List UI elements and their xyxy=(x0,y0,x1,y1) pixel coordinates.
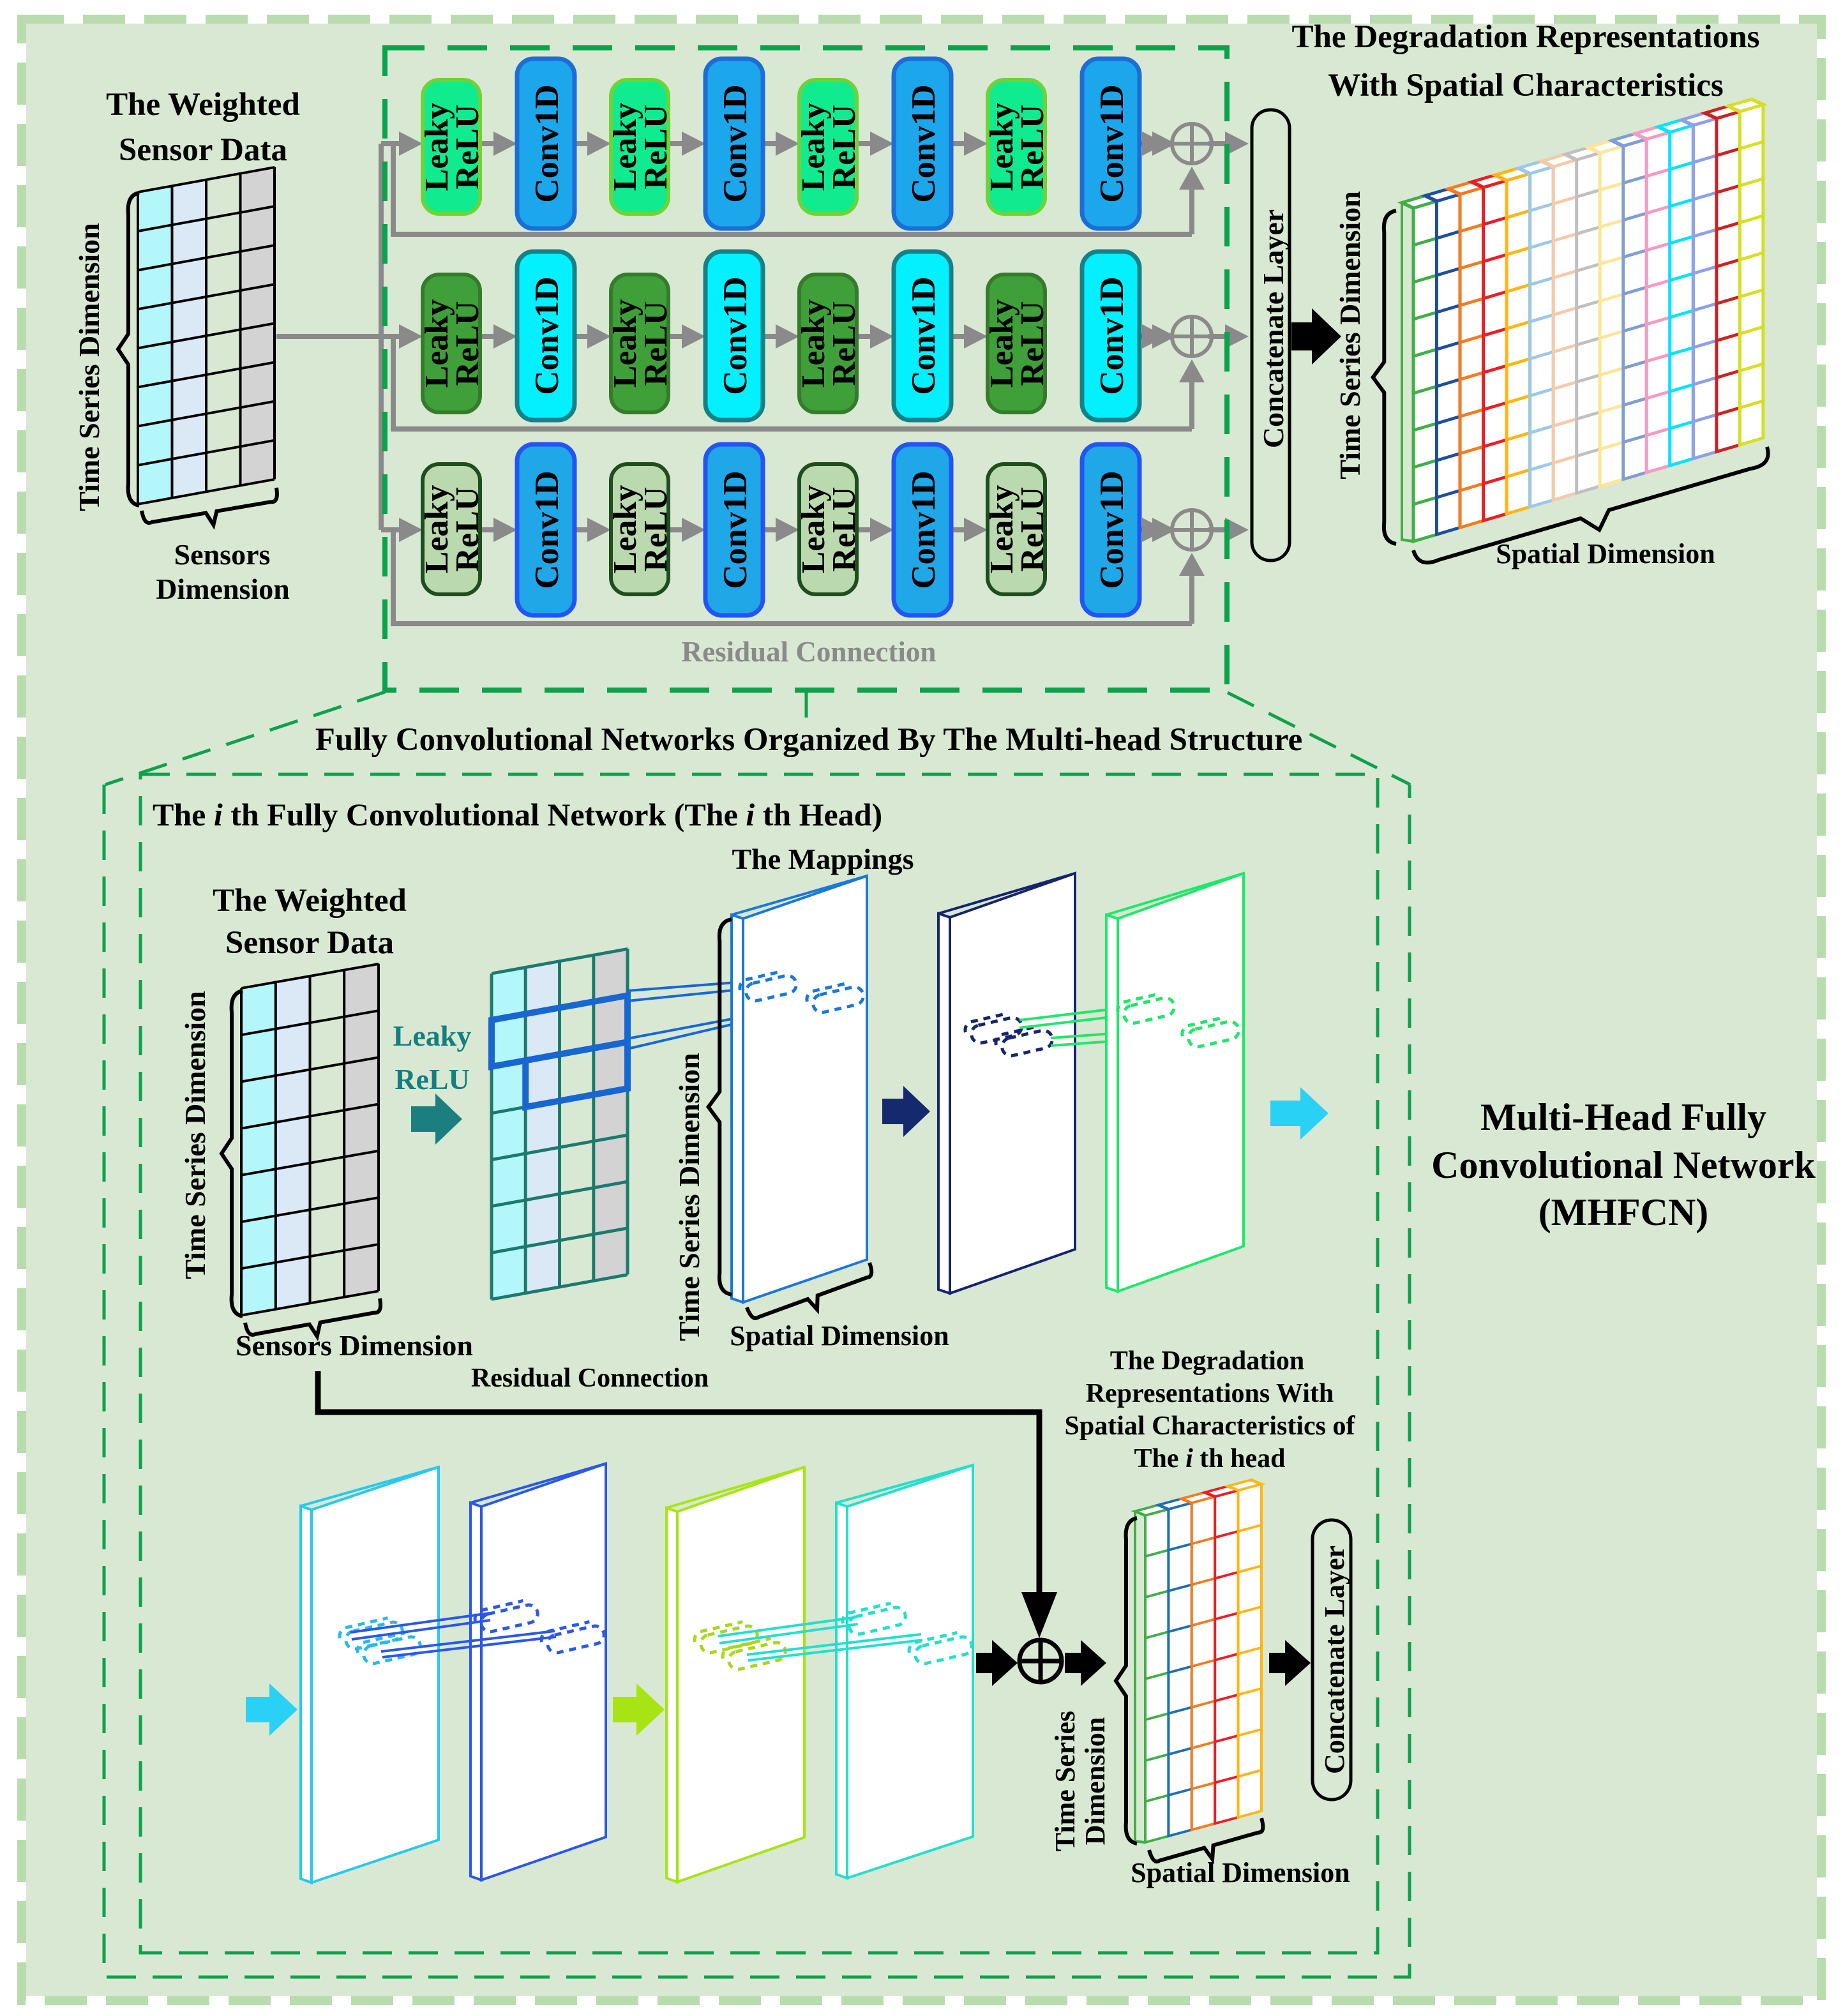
svg-text:ReLU: ReLU xyxy=(638,487,674,572)
svg-text:Conv1D: Conv1D xyxy=(717,84,754,203)
svg-text:Conv1D: Conv1D xyxy=(717,470,754,589)
svg-text:ReLU: ReLU xyxy=(1014,487,1051,572)
svg-text:Spatial Dimension: Spatial Dimension xyxy=(1496,538,1715,569)
svg-text:Conv1D: Conv1D xyxy=(529,276,566,395)
svg-text:Conv1D: Conv1D xyxy=(905,470,942,589)
svg-text:The Weighted: The Weighted xyxy=(213,883,407,919)
svg-text:ReLU: ReLU xyxy=(826,105,862,190)
svg-text:Sensors Dimension: Sensors Dimension xyxy=(236,1329,473,1362)
svg-text:(MHFCN): (MHFCN) xyxy=(1538,1191,1709,1233)
svg-text:ReLU: ReLU xyxy=(638,301,674,386)
svg-text:ReLU: ReLU xyxy=(449,487,486,572)
svg-text:Spatial Dimension: Spatial Dimension xyxy=(730,1320,949,1351)
svg-text:Residual Connection: Residual Connection xyxy=(682,636,937,668)
svg-text:Convolutional Network: Convolutional Network xyxy=(1431,1144,1816,1186)
svg-text:Conv1D: Conv1D xyxy=(1094,470,1131,589)
svg-text:ReLU: ReLU xyxy=(826,487,862,572)
svg-text:The Weighted: The Weighted xyxy=(106,87,300,123)
svg-text:Fully Convolutional Networks O: Fully Convolutional Networks Organized B… xyxy=(315,722,1303,758)
svg-text:Conv1D: Conv1D xyxy=(905,276,942,395)
svg-text:ReLU: ReLU xyxy=(1014,105,1051,190)
svg-text:Conv1D: Conv1D xyxy=(1094,84,1131,203)
svg-text:The Degradation Representation: The Degradation Representations xyxy=(1292,19,1760,55)
svg-text:Conv1D: Conv1D xyxy=(529,470,566,589)
svg-text:ReLU: ReLU xyxy=(395,1063,470,1095)
svg-text:Concatenate Layer: Concatenate Layer xyxy=(1319,1546,1350,1774)
svg-text:ReLU: ReLU xyxy=(449,301,486,386)
svg-text:Conv1D: Conv1D xyxy=(905,84,942,203)
svg-text:The Mappings: The Mappings xyxy=(732,843,914,875)
svg-text:The Degradation: The Degradation xyxy=(1110,1346,1305,1376)
svg-text:Conv1D: Conv1D xyxy=(529,84,566,203)
svg-text:ReLU: ReLU xyxy=(826,301,862,386)
svg-text:Conv1D: Conv1D xyxy=(1094,276,1131,395)
svg-text:The i th Fully Convolutional N: The i th Fully Convolutional Network (Th… xyxy=(153,797,882,832)
svg-text:Concatenate Layer: Concatenate Layer xyxy=(1257,209,1290,448)
svg-text:Dimension: Dimension xyxy=(1079,1717,1111,1845)
svg-text:Conv1D: Conv1D xyxy=(717,276,754,395)
svg-text:Time Series Dimension: Time Series Dimension xyxy=(73,223,105,511)
svg-text:Time Series: Time Series xyxy=(1049,1711,1081,1851)
svg-text:Representations With: Representations With xyxy=(1086,1379,1334,1408)
svg-text:Multi-Head Fully: Multi-Head Fully xyxy=(1480,1096,1766,1138)
svg-text:ReLU: ReLU xyxy=(449,105,486,190)
svg-text:Time Series Dimension: Time Series Dimension xyxy=(179,991,211,1279)
svg-text:Spatial Characteristics of: Spatial Characteristics of xyxy=(1065,1411,1356,1441)
svg-text:ReLU: ReLU xyxy=(1014,301,1051,386)
svg-text:Sensor Data: Sensor Data xyxy=(225,925,394,961)
svg-text:Time Series Dimension: Time Series Dimension xyxy=(673,1053,705,1341)
svg-text:Spatial Dimension: Spatial Dimension xyxy=(1131,1857,1350,1888)
svg-text:The i th head: The i th head xyxy=(1134,1444,1286,1473)
svg-text:ReLU: ReLU xyxy=(638,105,674,190)
svg-text:Sensors: Sensors xyxy=(174,538,271,571)
svg-text:Dimension: Dimension xyxy=(156,573,290,605)
svg-text:Time Series Dimension: Time Series Dimension xyxy=(1334,191,1366,479)
svg-text:With Spatial Characteristics: With Spatial Characteristics xyxy=(1328,68,1724,103)
svg-text:Leaky: Leaky xyxy=(393,1019,472,1052)
svg-text:Residual Connection: Residual Connection xyxy=(471,1364,709,1393)
svg-text:Sensor Data: Sensor Data xyxy=(119,132,287,168)
